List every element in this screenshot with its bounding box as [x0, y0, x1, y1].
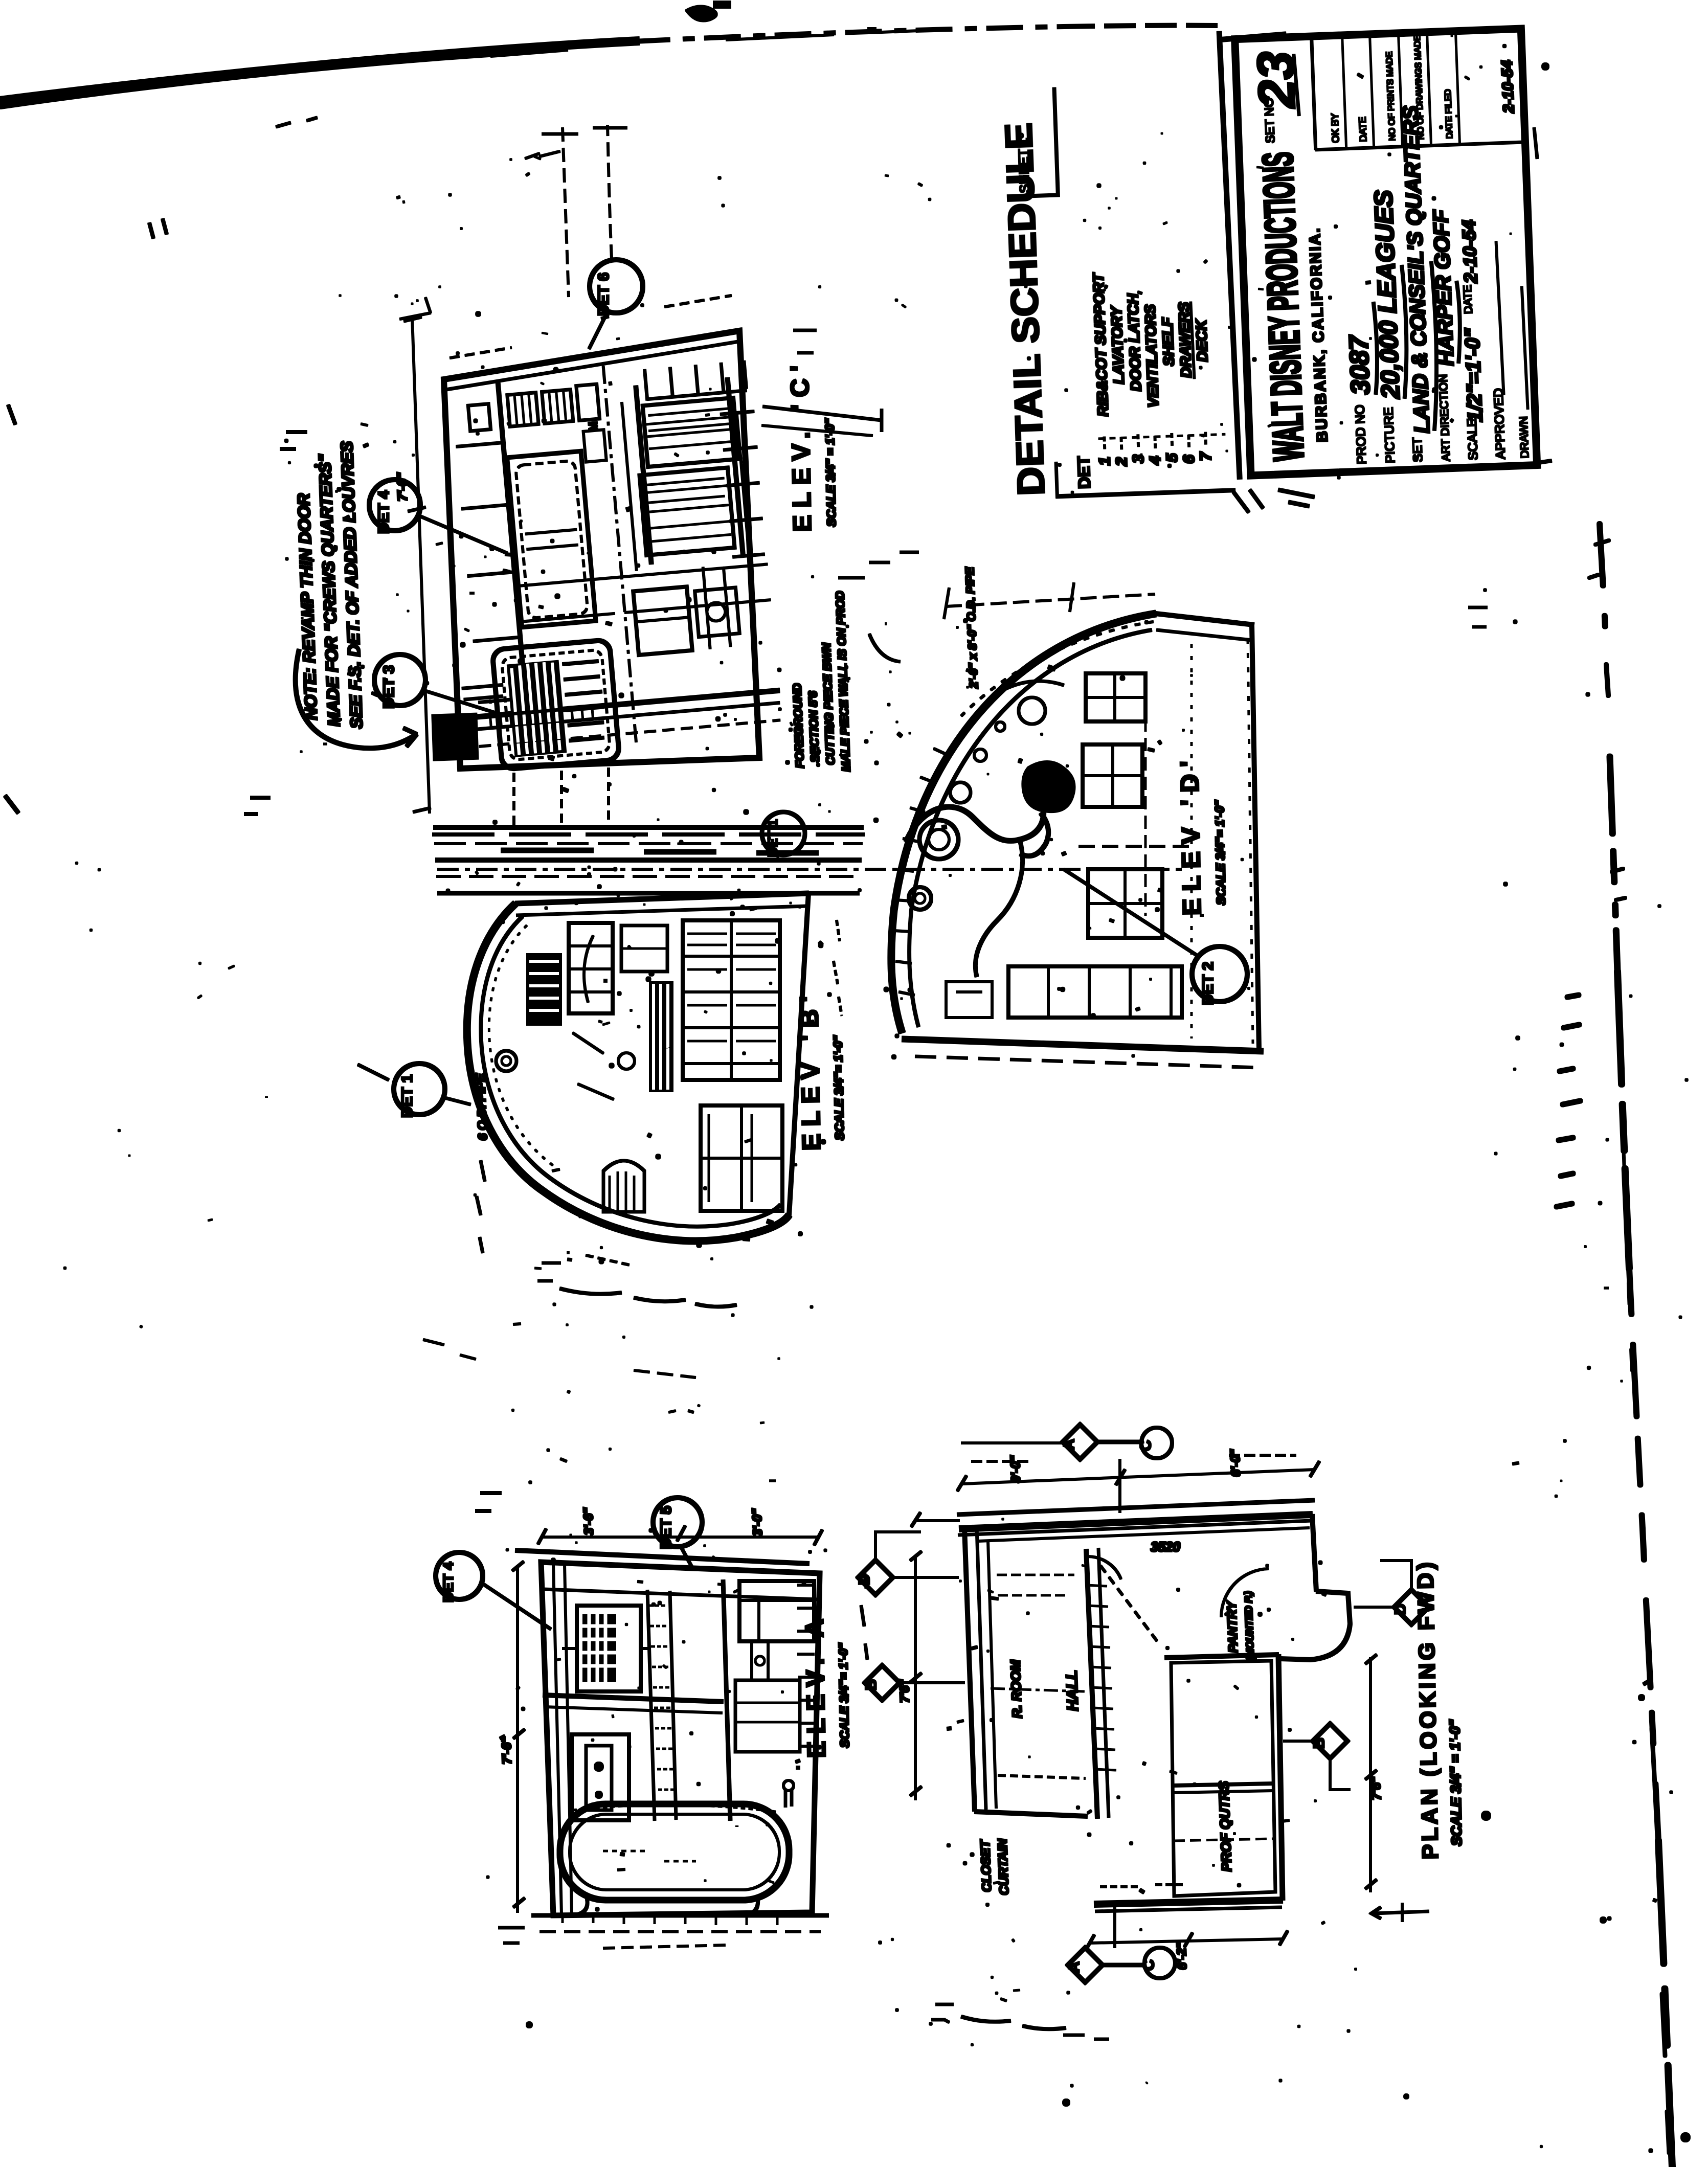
svg-text:2: 2	[1112, 457, 1131, 467]
svg-text:A: A	[1066, 1961, 1083, 1973]
svg-text:CLOSET: CLOSET	[978, 1839, 994, 1892]
svg-text:7'6": 7'6"	[1368, 1776, 1384, 1800]
svg-text:B: B	[863, 1679, 880, 1690]
svg-text:(MOUNTED P.): (MOUNTED P.)	[1243, 1591, 1256, 1661]
svg-text:DECK: DECK	[1193, 319, 1211, 362]
svg-text:DATE FILED: DATE FILED	[1443, 89, 1455, 139]
svg-text:FOREGROUND: FOREGROUND	[790, 683, 806, 769]
svg-text:SCALE 3/4"= 1'-0": SCALE 3/4"= 1'-0"	[836, 1642, 852, 1748]
svg-text:ELEV. 'C': ELEV. 'C'	[785, 358, 817, 532]
svg-text:9'-0": 9'-0"	[1008, 1455, 1023, 1483]
svg-text:3520: 3520	[1151, 1539, 1180, 1554]
svg-text:6'-2": 6'-2"	[1174, 1942, 1189, 1970]
svg-text:3'-0": 3'-0"	[750, 1508, 765, 1537]
svg-text:6 O.D. PIPE: 6 O.D. PIPE	[474, 1073, 490, 1141]
svg-text:5: 5	[1163, 453, 1181, 462]
svg-text:RIB&COT SUPPORT: RIB&COT SUPPORT	[1090, 272, 1112, 417]
svg-text:DATE: DATE	[1461, 285, 1475, 314]
svg-text:PLAN (LOOKING FWD): PLAN (LOOKING FWD)	[1413, 1559, 1443, 1860]
svg-text:3'-6": 3'-6"	[581, 1507, 596, 1536]
svg-text:ELEV. A: ELEV. A	[800, 1612, 831, 1758]
svg-text:7: 7	[1197, 451, 1215, 461]
svg-text:DET 4: DET 4	[375, 490, 392, 534]
svg-text:LAVATORY: LAVATORY	[1108, 305, 1127, 385]
svg-text:SCALE 3/4" = 1'-0": SCALE 3/4" = 1'-0"	[823, 418, 839, 527]
svg-text:HALL: HALL	[1063, 1670, 1082, 1711]
svg-text:PROF QUTRS: PROF QUTRS	[1216, 1781, 1234, 1872]
svg-text:APPROVED: APPROVED	[1491, 388, 1508, 460]
svg-text:A: A	[1061, 1439, 1077, 1450]
svg-text:ELEV 'D': ELEV 'D'	[1175, 753, 1206, 915]
svg-text:DET: DET	[1074, 456, 1094, 489]
svg-text:7'-6": 7'-6"	[394, 472, 410, 502]
svg-text:1: 1	[1095, 457, 1114, 466]
svg-text:SET: SET	[1410, 437, 1425, 463]
svg-text:DET 5: DET 5	[658, 1506, 675, 1549]
svg-text:PROD NO: PROD NO	[1353, 404, 1369, 465]
svg-text:7'-6": 7'-6"	[499, 1736, 514, 1765]
svg-text:2-10-54: 2-10-54	[1499, 60, 1518, 114]
svg-text:DOOR LATCH: DOOR LATCH	[1125, 293, 1145, 392]
svg-text:4: 4	[1146, 456, 1164, 465]
svg-text:R. ROOM: R. ROOM	[1007, 1659, 1025, 1718]
svg-text:SCALE 3/4"= 1'-0": SCALE 3/4"= 1'-0"	[1212, 800, 1228, 905]
svg-text:ART DIRECTION: ART DIRECTION	[1436, 374, 1452, 461]
svg-text:SHELF: SHELF	[1159, 317, 1177, 366]
svg-text:2-10-54: 2-10-54	[1458, 219, 1481, 284]
svg-text:NO OF PRINTS MADE: NO OF PRINTS MADE	[1384, 51, 1397, 141]
svg-text:NOTE: REVAMP THIN DOOR: NOTE: REVAMP THIN DOOR	[294, 493, 321, 720]
svg-text:DET 1: DET 1	[399, 1074, 416, 1118]
svg-text:C: C	[1140, 1959, 1157, 1971]
svg-text:SCALE 3/4" = 1'-0": SCALE 3/4" = 1'-0"	[1447, 1719, 1465, 1846]
svg-text:PANTRY: PANTRY	[1224, 1600, 1241, 1653]
svg-text:DATE: DATE	[1357, 117, 1369, 142]
svg-text:3087: 3087	[1344, 334, 1376, 395]
svg-text:C: C	[1137, 1440, 1154, 1451]
svg-text:D: D	[1392, 1604, 1409, 1615]
svg-text:ELEV 'B': ELEV 'B'	[794, 988, 826, 1150]
svg-text:DET 1: DET 1	[765, 819, 780, 857]
svg-text:SCALE: SCALE	[1465, 418, 1480, 461]
svg-text:6'-0": 6'-0"	[1228, 1449, 1243, 1477]
svg-text:D: D	[856, 1574, 873, 1585]
svg-text:OK BY: OK BY	[1330, 113, 1341, 143]
svg-text:1/2"=1'-0": 1/2"=1'-0"	[1461, 327, 1487, 423]
svg-text:DET 6: DET 6	[595, 273, 612, 316]
svg-text:3: 3	[1129, 454, 1148, 463]
svg-text:6: 6	[1180, 454, 1198, 464]
svg-text:B: B	[1311, 1737, 1328, 1749]
svg-text:SHEET 1º: SHEET 1º	[1015, 132, 1032, 193]
svg-text:CUTTING PIECE BWN: CUTTING PIECE BWN	[819, 643, 837, 765]
svg-text:7'6": 7'6"	[897, 1679, 912, 1703]
svg-text:PICTURE: PICTURE	[1381, 407, 1398, 464]
svg-text:DET 4: DET 4	[440, 1562, 456, 1602]
svg-text:DET 3: DET 3	[380, 665, 397, 709]
svg-text:WALT DISNEY PRODUCTIONS: WALT DISNEY PRODUCTIONS	[1253, 151, 1313, 462]
svg-text:DET 2: DET 2	[1200, 962, 1217, 1005]
svg-text:DRAWN: DRAWN	[1517, 416, 1531, 459]
svg-text:CURTAIN: CURTAIN	[995, 1838, 1012, 1895]
